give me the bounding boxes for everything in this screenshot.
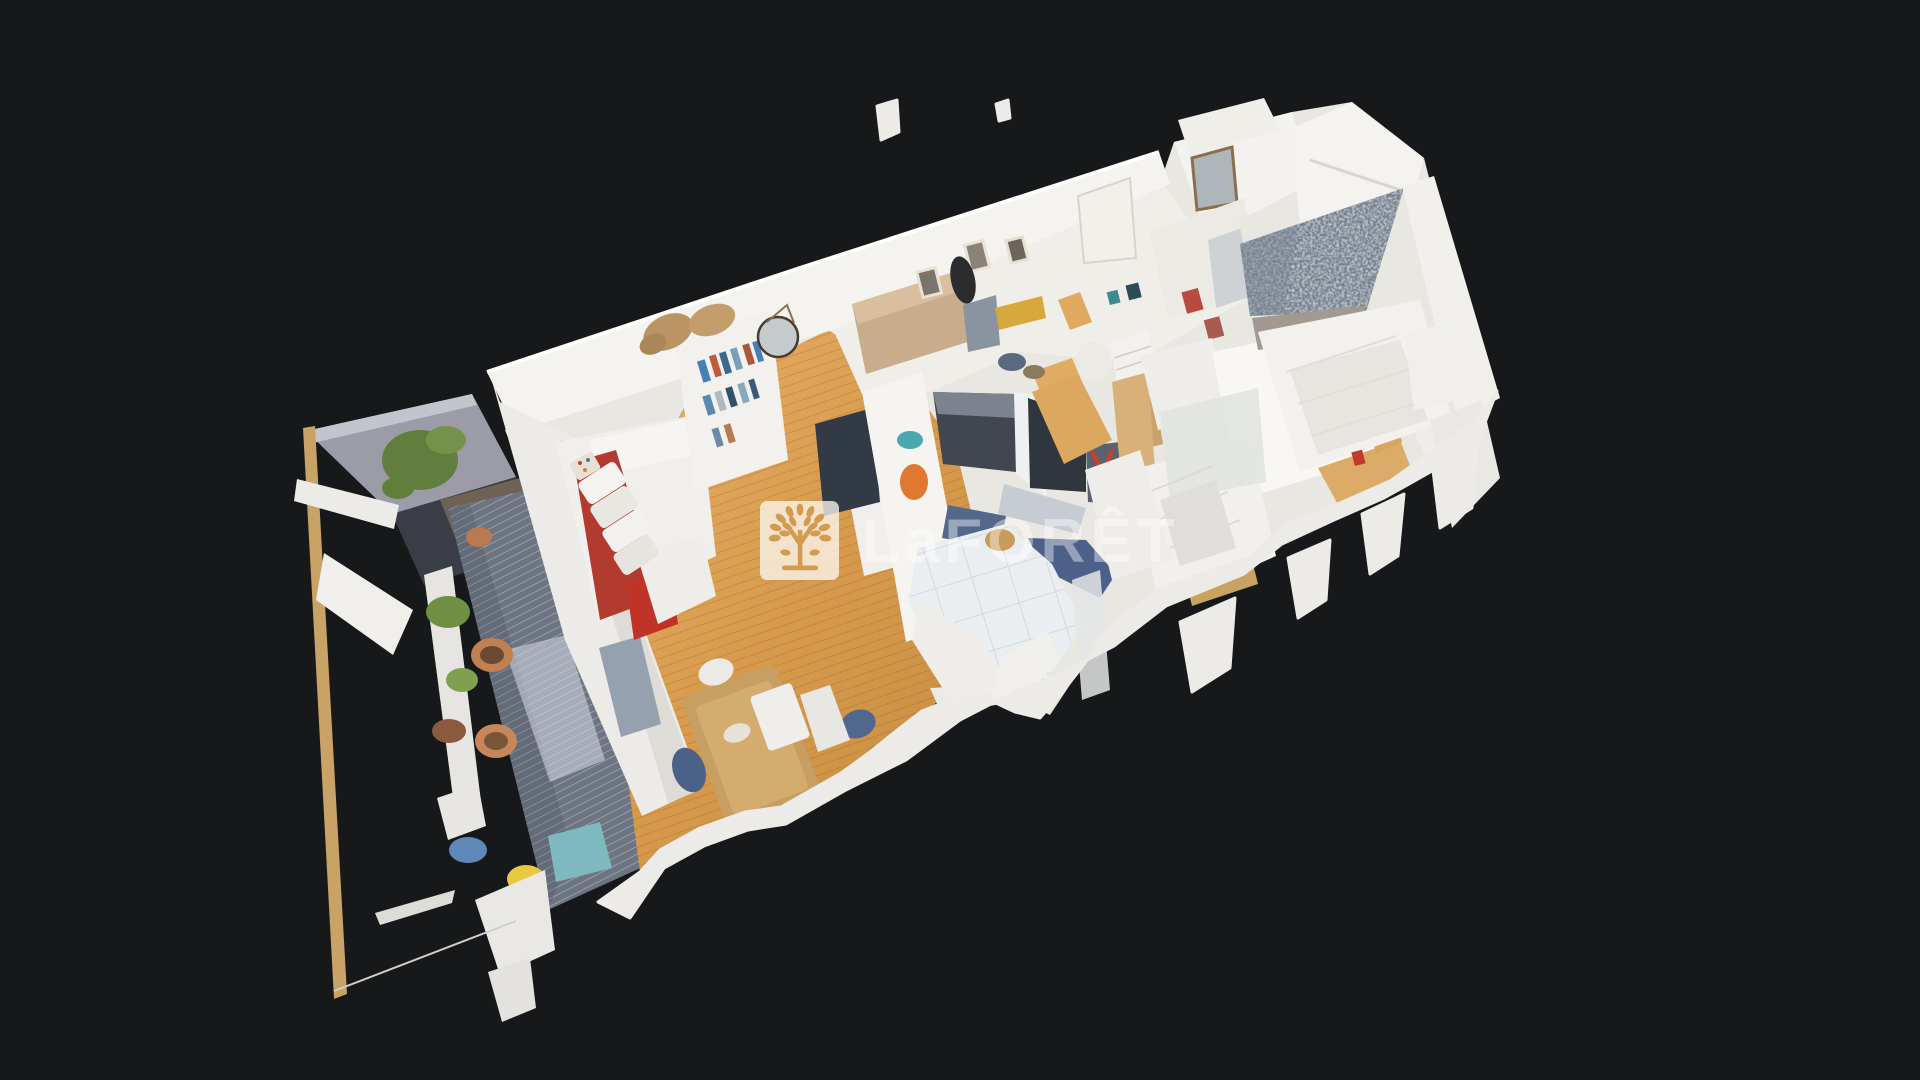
svg-text:LaFORÊT: LaFORÊT: [862, 507, 1179, 576]
